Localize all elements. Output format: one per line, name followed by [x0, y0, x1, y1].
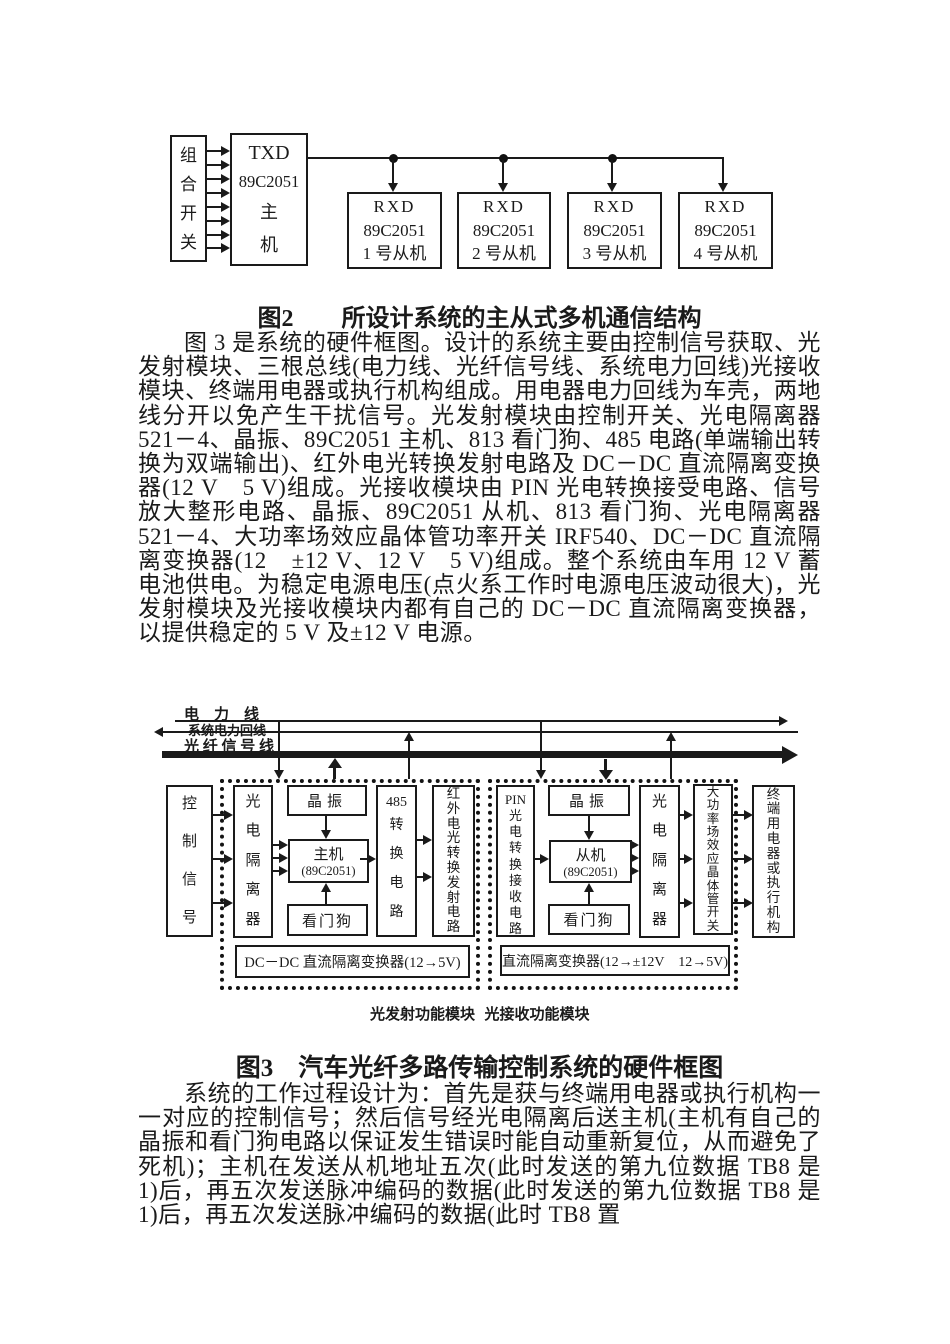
- opto-to-mosfet-arrow: [680, 858, 684, 860]
- combination-switch-label: 组合开关: [180, 141, 198, 257]
- switch-to-master-arrow: [206, 206, 221, 208]
- master-line-chip: 89C2051: [239, 172, 300, 192]
- pin-label: PIN: [505, 792, 526, 808]
- conv-485-box: 485 转换电路: [376, 785, 417, 937]
- control-to-opto-arrow: [213, 814, 224, 816]
- slave-chip: 89C2051: [694, 219, 756, 242]
- opto-isolator-box-right: 光电隔离器: [639, 785, 680, 938]
- slave-chip: 89C2051: [473, 219, 535, 242]
- crystal-to-slave-arrow: [588, 816, 590, 831]
- slave-number: 3 号从机: [583, 242, 647, 265]
- master-chip-model: (89C2051): [301, 864, 355, 879]
- switch-to-master-arrow: [206, 192, 221, 194]
- bus-drop-arrow: [722, 157, 724, 183]
- slave-rxd: RXD: [483, 195, 525, 218]
- fiber-signal-line: [162, 751, 782, 758]
- control-signal-box: 控制信号: [166, 785, 213, 937]
- ir-transmit-box: 红外电光转换发射电路: [432, 785, 475, 937]
- return-up-arrow-right: [670, 741, 672, 779]
- master-chip-name: 主机: [313, 843, 343, 864]
- crystal-box-right: 晶振: [548, 785, 630, 816]
- opto-to-mosfet-arrow: [680, 902, 684, 904]
- scanned-paper-page: 组合开关 TXD 89C2051 主 机 RXD 89C2051 1 号从机: [0, 0, 950, 1344]
- watchdog-box-left: 看门狗: [287, 904, 368, 936]
- watchdog-label: 看门狗: [302, 910, 353, 931]
- power-feed-arrow-right: [540, 722, 542, 770]
- opto-to-master-arrow: [272, 857, 279, 859]
- slave-box-4: RXD 89C2051 4 号从机: [678, 192, 773, 269]
- dc-converter-bar-right: 直流隔离变换器(12→±12V 12→5V): [500, 945, 730, 976]
- control-to-opto-arrow: [213, 858, 224, 860]
- slave-rxd: RXD: [705, 195, 747, 218]
- conv485-to-ir-arrow: [417, 876, 423, 878]
- pin-receive-box: PIN 光电转换接收电路: [496, 785, 535, 937]
- switch-to-master-arrow: [206, 150, 221, 152]
- switch-to-master-arrow: [206, 164, 221, 166]
- watchdog-to-slave-arrow: [588, 892, 590, 904]
- dc-converter-right-label: 直流隔离变换器(12→±12V 12→5V): [502, 951, 728, 971]
- master-line-txd: TXD: [248, 142, 289, 165]
- crystal-label: 晶振: [569, 790, 609, 811]
- bus-drop-arrow: [611, 160, 613, 183]
- slave-chip-box: 从机 (89C2051): [549, 840, 632, 883]
- terminal-load-box: 终端用电器或执行机构: [752, 785, 795, 938]
- slave-chip: 89C2051: [363, 219, 425, 242]
- crystal-to-master-arrow: [325, 816, 327, 830]
- pin-receive-label: 光电转换接收电路: [509, 808, 523, 938]
- slave-box-3: RXD 89C2051 3 号从机: [567, 192, 662, 269]
- slave-number: 2 号从机: [472, 242, 536, 265]
- master-chip-box: 主机 (89C2051): [288, 839, 369, 883]
- slave-chip: 89C2051: [583, 219, 645, 242]
- mosfet-switch-label: 大功率场效应晶体管开关: [706, 786, 719, 933]
- dc-converter-bar-left: DC－DC 直流隔离变换器(12→5V): [235, 945, 470, 978]
- dc-converter-left-label: DC－DC 直流隔离变换器(12→5V): [244, 951, 460, 972]
- watchdog-label: 看门狗: [563, 909, 614, 930]
- pin-to-slave-arrow: [534, 858, 540, 860]
- slave-chip-name: 从机: [575, 844, 605, 865]
- mosfet-to-terminal-arrow: [732, 814, 744, 816]
- figure3-caption: 图3 汽车光纤多路传输控制系统的硬件框图: [138, 1048, 821, 1084]
- slave-box-2: RXD 89C2051 2 号从机: [457, 192, 551, 269]
- master-to-485-arrow: [360, 858, 367, 860]
- master-box: TXD 89C2051 主 机: [230, 133, 308, 266]
- system-return-line: [163, 731, 798, 733]
- switch-to-master-arrow: [206, 247, 221, 249]
- master-line-zhu: 主: [260, 198, 278, 224]
- fiber-up-arrow-left: [333, 768, 336, 779]
- ir-transmit-label: 红外电光转换发射电路: [446, 787, 460, 935]
- opto-isolator-label: 光电隔离器: [652, 788, 668, 936]
- return-up-arrow-left: [408, 741, 410, 779]
- watchdog-to-master-arrow: [325, 892, 327, 904]
- conv485-to-ir-arrow: [417, 839, 423, 841]
- opto-isolator-box-left: 光电隔离器: [233, 785, 273, 938]
- crystal-box-left: 晶振: [287, 785, 367, 816]
- watchdog-box-right: 看门狗: [548, 904, 630, 935]
- paragraph-1: 图 3 是系统的硬件框图。设计的系统主要由控制信号获取、光发射模块、三根总线(电…: [138, 331, 821, 646]
- bus-drop-arrow: [392, 160, 394, 183]
- slave-rxd: RXD: [374, 195, 416, 218]
- crystal-label: 晶振: [307, 790, 347, 811]
- paragraph-2: 系统的工作过程设计为：首先是获与终端用电器或执行机构一一对应的控制信号；然后信号…: [138, 1082, 821, 1227]
- opto-to-master-arrow: [272, 870, 279, 872]
- conv-485-label: 转换电路: [389, 811, 404, 927]
- fiber-down-arrow-right: [604, 759, 607, 770]
- power-feed-arrow-left: [278, 722, 280, 770]
- slave-number: 4 号从机: [694, 242, 758, 265]
- master-line-ji: 机: [260, 231, 278, 257]
- control-signal-label: 控制信号: [182, 785, 198, 937]
- switch-to-master-arrow: [206, 220, 221, 222]
- figure2-diagram: 组合开关 TXD 89C2051 主 机 RXD 89C2051 1 号从机: [0, 0, 950, 290]
- opto-isolator-label: 光电隔离器: [245, 788, 261, 936]
- slave-rxd: RXD: [594, 195, 636, 218]
- bus-drop-arrow: [502, 160, 504, 183]
- control-to-opto-arrow: [213, 902, 224, 904]
- slave-box-1: RXD 89C2051 1 号从机: [347, 192, 442, 269]
- terminal-load-label: 终端用电器或执行机构: [766, 788, 780, 936]
- slave-chip-model: (89C2051): [563, 865, 617, 880]
- receive-module-caption: 光接收功能模块: [482, 1003, 592, 1024]
- switch-to-master-arrow: [206, 178, 221, 180]
- conv-485-number: 485: [386, 795, 407, 811]
- mosfet-to-terminal-arrow: [732, 902, 744, 904]
- switch-to-master-arrow: [206, 234, 221, 236]
- txd-bus-line: [308, 157, 724, 159]
- transmit-module-caption: 光发射功能模块: [360, 1003, 485, 1024]
- mosfet-to-terminal-arrow: [732, 858, 744, 860]
- figure2-caption: 图2 所设计系统的主从式多机通信结构: [138, 298, 821, 333]
- opto-to-master-arrow: [272, 844, 279, 846]
- mosfet-switch-box: 大功率场效应晶体管开关: [693, 784, 733, 935]
- combination-switch-box: 组合开关: [170, 135, 207, 262]
- opto-to-mosfet-arrow: [680, 814, 684, 816]
- slave-number: 1 号从机: [363, 242, 427, 265]
